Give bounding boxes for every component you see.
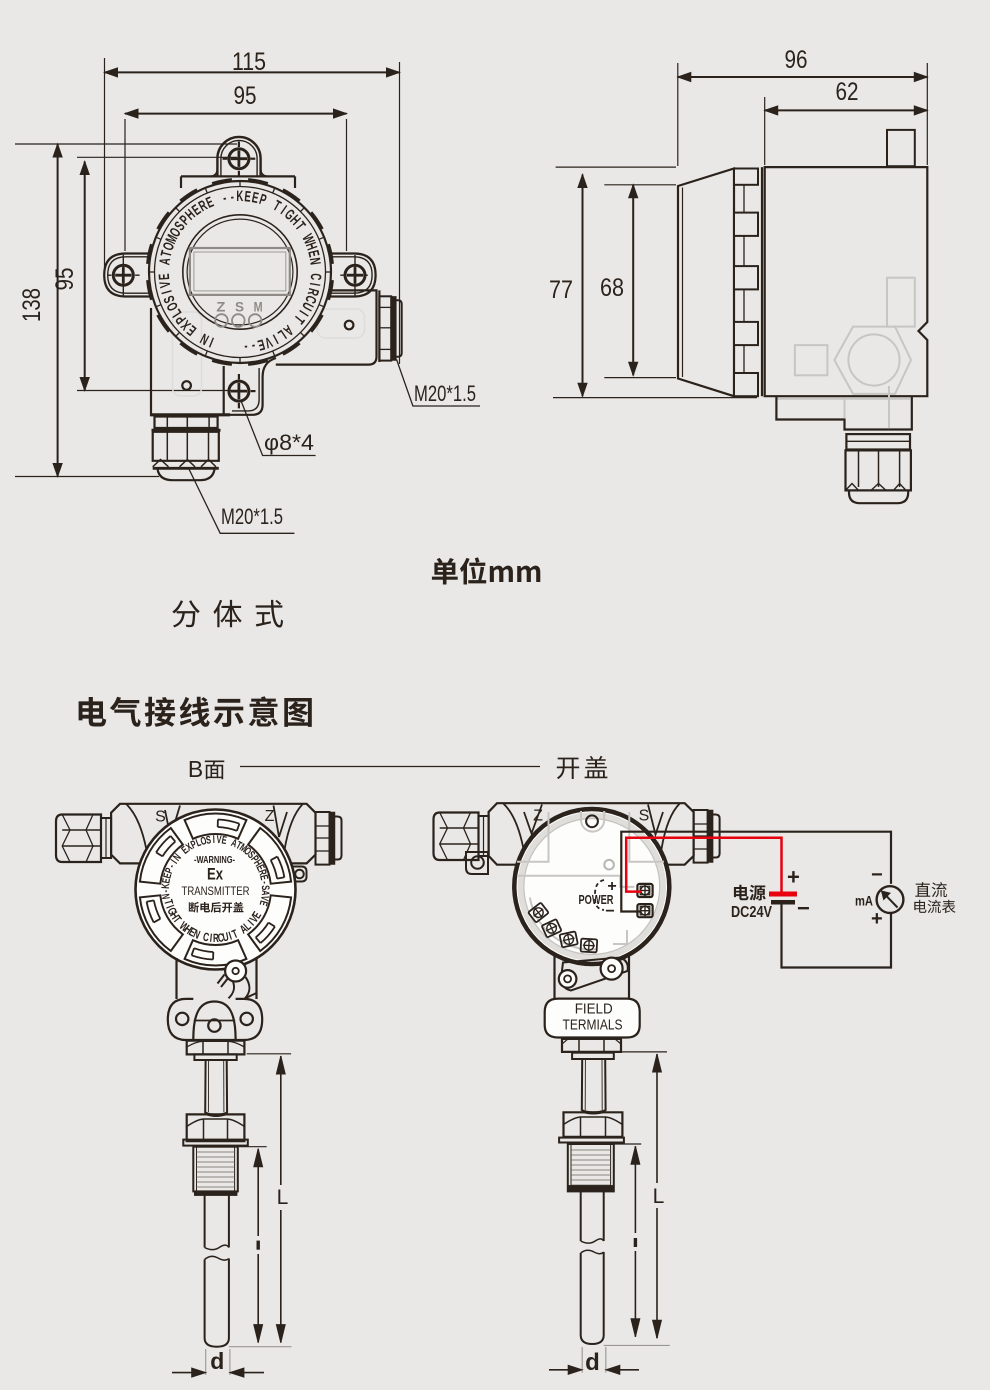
- svg-text:+: +: [607, 878, 616, 895]
- svg-text:FIELD: FIELD: [575, 1002, 613, 1018]
- svg-text:96: 96: [785, 46, 808, 74]
- svg-text:+: +: [871, 908, 883, 930]
- svg-text:−: −: [605, 903, 614, 920]
- svg-text:S: S: [155, 808, 166, 825]
- svg-text:M20*1.5: M20*1.5: [414, 381, 476, 406]
- svg-text:L: L: [653, 1185, 665, 1208]
- svg-text:S: S: [639, 808, 650, 825]
- svg-text:+: +: [787, 865, 800, 890]
- svg-text:TERMIALS: TERMIALS: [563, 1018, 623, 1034]
- svg-text:138: 138: [18, 288, 46, 322]
- svg-text:I: I: [212, 832, 215, 845]
- svg-text:E: E: [156, 273, 173, 280]
- svg-text:M: M: [254, 299, 263, 315]
- svg-text:115: 115: [232, 48, 266, 76]
- svg-text:77: 77: [549, 276, 573, 304]
- svg-text:M20*1.5: M20*1.5: [221, 504, 283, 529]
- svg-text:-: -: [158, 890, 171, 893]
- svg-text:95: 95: [51, 268, 79, 291]
- svg-text:d: d: [210, 1348, 224, 1374]
- svg-text:K: K: [236, 188, 243, 205]
- svg-text:mA: mA: [855, 893, 873, 909]
- svg-text:S: S: [235, 299, 244, 315]
- svg-text:Z: Z: [265, 808, 275, 825]
- svg-text:Z: Z: [216, 299, 225, 315]
- svg-text:TRANSMITTER: TRANSMITTER: [182, 886, 250, 898]
- svg-text:DC24V: DC24V: [731, 904, 772, 921]
- svg-text:C: C: [307, 273, 324, 281]
- svg-text:−: −: [871, 864, 883, 886]
- svg-text:L: L: [277, 1186, 289, 1209]
- svg-text:φ8*4: φ8*4: [264, 430, 314, 455]
- svg-text:−: −: [797, 896, 810, 921]
- svg-text:68: 68: [600, 274, 624, 302]
- svg-text:B: B: [188, 756, 203, 782]
- svg-text:d: d: [585, 1349, 600, 1376]
- svg-text:Ex: Ex: [207, 865, 223, 884]
- svg-text:62: 62: [836, 78, 859, 106]
- svg-text:95: 95: [234, 82, 257, 110]
